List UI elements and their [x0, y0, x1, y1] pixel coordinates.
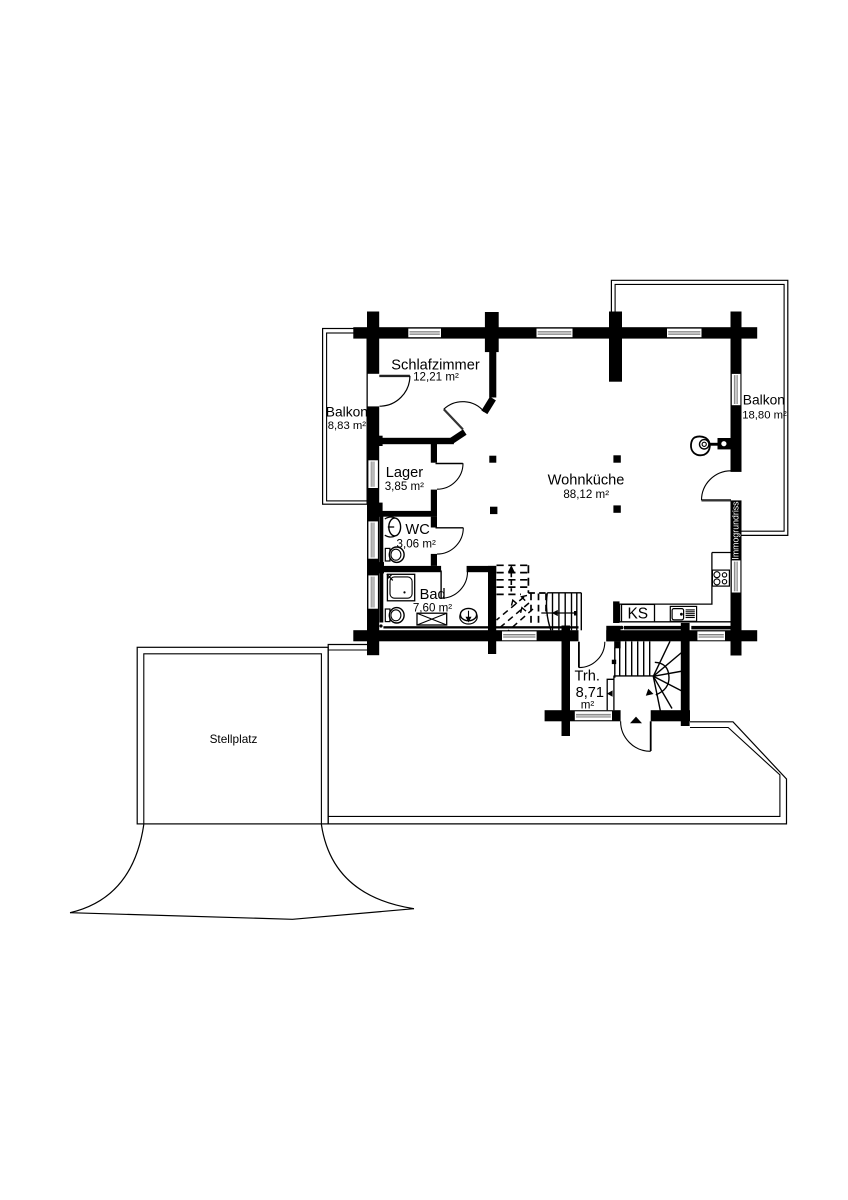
- svg-text:88,12 m²: 88,12 m²: [563, 488, 609, 501]
- svg-text:18,80 m²: 18,80 m²: [742, 410, 787, 422]
- svg-text:3,06 m²: 3,06 m²: [397, 538, 436, 551]
- svg-text:Wohnküche: Wohnküche: [548, 472, 625, 488]
- svg-text:Stellplatz: Stellplatz: [210, 732, 258, 746]
- svg-text:Trh.: Trh.: [574, 669, 599, 685]
- svg-text:m²: m²: [581, 699, 595, 712]
- svg-text:8,83 m²: 8,83 m²: [328, 420, 367, 432]
- svg-text:WC: WC: [405, 522, 429, 538]
- svg-text:7,60 m²: 7,60 m²: [413, 601, 452, 614]
- svg-text:3,85 m²: 3,85 m²: [385, 480, 424, 493]
- svg-text:Balkon: Balkon: [326, 404, 368, 419]
- svg-text:Lager: Lager: [386, 465, 423, 481]
- svg-text:Immogrundriss: Immogrundriss: [730, 501, 740, 560]
- svg-text:12,21 m²: 12,21 m²: [413, 370, 459, 383]
- svg-text:Balkon: Balkon: [743, 393, 785, 408]
- svg-text:KS: KS: [627, 605, 648, 622]
